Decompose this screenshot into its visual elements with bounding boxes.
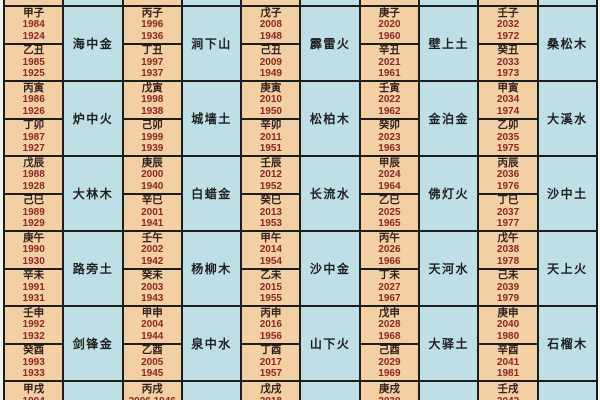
element-cell: 涧下山 <box>183 7 240 80</box>
year-value: 2010 <box>260 94 282 106</box>
year-cell: 庚子20201960 <box>361 7 418 43</box>
years-column: 丙子19961936丁丑19971937戊寅19981938己卯19991939… <box>124 0 181 400</box>
cropped-row-sliver <box>479 0 536 5</box>
year-value: 1930 <box>23 256 45 268</box>
year-value: 2022 <box>378 94 400 106</box>
year-value: 2042 <box>497 396 519 400</box>
stem-branch-label: 丙戌 <box>142 384 163 396</box>
year-value: 2028 <box>378 319 400 331</box>
year-cell: 己未20391979 <box>479 270 536 306</box>
stem-branch-label: 乙巳 <box>379 195 400 207</box>
year-value: 1979 <box>497 293 519 305</box>
year-cell: 甲子19841924 <box>5 7 62 43</box>
element-cell: 长流水 <box>301 157 358 230</box>
element-label: 泉中水 <box>191 335 232 352</box>
year-value: 1961 <box>378 68 400 80</box>
stem-branch-label: 甲子 <box>23 8 44 20</box>
year-cell: 丙辰20361976 <box>479 157 536 193</box>
stem-branch-label: 丁酉 <box>260 345 281 357</box>
stem-branch-label: 乙未 <box>260 270 281 282</box>
year-value: 2015 <box>260 282 282 294</box>
element-label: 山下火 <box>310 335 351 352</box>
element-cell: 山下火 <box>301 307 358 380</box>
year-value: 2004 <box>141 319 163 331</box>
year-value: 1992 <box>23 319 45 331</box>
year-value: 1944 <box>141 331 163 343</box>
year-value: 1977 <box>497 218 519 230</box>
element-label: 松柏木 <box>310 110 351 127</box>
year-value: 2035 <box>497 132 519 144</box>
element-cell: 石榴木 <box>539 307 596 380</box>
cropped-row-sliver <box>301 0 358 5</box>
element-label: 天河水 <box>428 260 469 277</box>
year-value: 1980 <box>497 331 519 343</box>
year-value: 2000 <box>141 169 163 181</box>
stem-branch-label: 己酉 <box>379 345 400 357</box>
year-value: 1957 <box>260 368 282 380</box>
stem-branch-label: 丁卯 <box>23 120 44 132</box>
year-value: 1931 <box>23 293 45 305</box>
year-value: 1963 <box>378 143 400 155</box>
stem-branch-label: 乙丑 <box>23 45 44 57</box>
year-value: 2011 <box>260 132 282 144</box>
element-cell: 金泊金 <box>420 82 477 155</box>
element-cell: 城墙土 <box>183 82 240 155</box>
year-value: 1948 <box>260 31 282 43</box>
year-value: 1960 <box>378 31 400 43</box>
year-value: 1927 <box>23 143 45 155</box>
year-cell: 壬寅20221962 <box>361 82 418 118</box>
year-value: 1984 <box>23 19 45 31</box>
year-value: 2021 <box>378 57 400 69</box>
element-label: 沙中金 <box>310 260 351 277</box>
year-cell: 甲申20041944 <box>124 307 181 343</box>
year-value: 2016 <box>260 319 282 331</box>
stem-branch-label: 丙子 <box>142 8 163 20</box>
element-label: 壁上土 <box>428 35 469 52</box>
cropped-row-sliver <box>242 0 299 5</box>
year-value: 2034 <box>497 94 519 106</box>
stem-branch-label: 己卯 <box>142 120 163 132</box>
year-value: 2003 <box>141 282 163 294</box>
element-label: 金泊金 <box>428 110 469 127</box>
stem-branch-label: 癸丑 <box>498 45 519 57</box>
year-value: 1993 <box>23 357 45 369</box>
element-label: 路旁土 <box>73 260 114 277</box>
year-value: 2014 <box>260 244 282 256</box>
year-value: 1929 <box>23 218 45 230</box>
cropped-row-sliver <box>420 0 477 5</box>
stem-branch-label: 甲申 <box>142 308 163 320</box>
year-value: 1949 <box>260 68 282 80</box>
element-label: 霹雷火 <box>310 35 351 52</box>
stem-branch-label: 丁未 <box>379 270 400 282</box>
year-cell-partial: 庚戌2030 <box>361 382 418 400</box>
element-label: 大林木 <box>73 185 114 202</box>
year-value: 1997 <box>141 57 163 69</box>
element-cell: 壁上土 <box>420 7 477 80</box>
element-cell: 大林木 <box>64 157 121 230</box>
year-cell: 庚午19901930 <box>5 232 62 268</box>
year-value: 1932 <box>23 331 45 343</box>
year-value: 1974 <box>497 106 519 118</box>
element-cell: 大驿土 <box>420 307 477 380</box>
year-cell: 辛卯20111951 <box>242 120 299 156</box>
year-cell-partial: 甲戌1994 <box>5 382 62 400</box>
year-cell: 丁卯19871927 <box>5 120 62 156</box>
year-value: 1936 <box>141 31 163 43</box>
year-cell: 癸丑20331973 <box>479 45 536 81</box>
element-column: 霹雷火松柏木长流水沙中金山下火 <box>301 0 358 400</box>
year-value: 2001 <box>141 207 163 219</box>
stem-branch-label: 庚辰 <box>142 158 163 170</box>
year-value: 1991 <box>23 282 45 294</box>
year-cell: 己巳19891929 <box>5 195 62 231</box>
year-value: 2026 <box>378 244 400 256</box>
year-value: 1955 <box>260 293 282 305</box>
element-label: 炉中火 <box>73 110 114 127</box>
year-value: 2024 <box>378 169 400 181</box>
year-value: 2002 <box>141 244 163 256</box>
year-value: 2008 <box>260 19 282 31</box>
year-value: 1998 <box>141 94 163 106</box>
year-value: 1940 <box>141 181 163 193</box>
year-value: 1994 <box>23 396 45 400</box>
element-cell: 桑松木 <box>539 7 596 80</box>
year-value: 1973 <box>497 68 519 80</box>
year-cell-partial: 戊戌2018 <box>242 382 299 400</box>
stem-branch-label: 庚寅 <box>260 83 281 95</box>
year-value: 1926 <box>23 106 45 118</box>
element-label: 白蜡金 <box>191 185 232 202</box>
year-value: 1952 <box>260 181 282 193</box>
year-cell: 甲午20141954 <box>242 232 299 268</box>
element-cell-partial <box>183 382 240 400</box>
stem-branch-label: 辛未 <box>23 270 44 282</box>
stem-branch-label: 癸卯 <box>379 120 400 132</box>
stem-branch-label: 甲午 <box>260 233 281 245</box>
year-value: 1989 <box>23 207 45 219</box>
element-column: 涧下山城墙土白蜡金杨柳木泉中水 <box>183 0 240 400</box>
year-value: 1988 <box>23 169 45 181</box>
years-column: 戊子20081948己丑20091949庚寅20101950辛卯20111951… <box>242 0 299 400</box>
element-label: 大溪水 <box>547 110 588 127</box>
year-value: 1953 <box>260 218 282 230</box>
year-value: 1954 <box>260 256 282 268</box>
nayin-table: 甲子19841924乙丑19851925丙寅19861926丁卯19871927… <box>3 0 598 400</box>
stem-branch-label: 庚午 <box>23 233 44 245</box>
year-cell: 辛丑20211961 <box>361 45 418 81</box>
year-value: 2017 <box>260 357 282 369</box>
stem-branch-label: 丙辰 <box>498 158 519 170</box>
year-value: 2030 <box>378 396 400 400</box>
stem-branch-label: 壬戌 <box>498 384 519 396</box>
cropped-row-sliver <box>539 0 596 5</box>
year-value: 2018 <box>260 396 282 400</box>
element-cell: 白蜡金 <box>183 157 240 230</box>
element-cell: 杨柳木 <box>183 232 240 305</box>
year-cell: 辛未19911931 <box>5 270 62 306</box>
year-cell: 戊子20081948 <box>242 7 299 43</box>
year-cell: 庚辰20001940 <box>124 157 181 193</box>
year-value: 1975 <box>497 143 519 155</box>
year-cell: 壬午20021942 <box>124 232 181 268</box>
year-cell: 甲寅20341974 <box>479 82 536 118</box>
year-value: 1966 <box>378 256 400 268</box>
stem-branch-label: 甲辰 <box>379 158 400 170</box>
year-value: 1976 <box>497 181 519 193</box>
year-value: 2005 <box>141 357 163 369</box>
stem-branch-label: 己巳 <box>23 195 44 207</box>
year-cell: 辛巳20011941 <box>124 195 181 231</box>
year-value: 1924 <box>23 31 45 43</box>
year-value: 1950 <box>260 106 282 118</box>
cropped-row-sliver <box>124 0 181 5</box>
year-value: 1941 <box>141 218 163 230</box>
stem-branch-label: 戊戌 <box>260 384 281 396</box>
year-cell: 丁酉20171957 <box>242 345 299 381</box>
element-label: 长流水 <box>310 185 351 202</box>
year-cell: 甲辰20241964 <box>361 157 418 193</box>
element-cell-partial <box>301 382 358 400</box>
year-value: 1985 <box>23 57 45 69</box>
element-cell: 路旁土 <box>64 232 121 305</box>
year-cell: 丙子19961936 <box>124 7 181 43</box>
year-value: 2009 <box>260 57 282 69</box>
year-value: 1925 <box>23 68 45 80</box>
year-value: 1972 <box>497 31 519 43</box>
year-value: 1981 <box>497 368 519 380</box>
year-cell: 己丑20091949 <box>242 45 299 81</box>
year-value: 2023 <box>378 132 400 144</box>
year-value: 1967 <box>378 293 400 305</box>
stem-branch-label: 乙酉 <box>142 345 163 357</box>
element-cell: 松柏木 <box>301 82 358 155</box>
element-column: 海中金炉中火大林木路旁土剑锋金 <box>64 0 121 400</box>
stem-branch-label: 戊子 <box>260 8 281 20</box>
year-value: 2020 <box>378 19 400 31</box>
stem-branch-label: 丙寅 <box>23 83 44 95</box>
year-value: 2032 <box>497 19 519 31</box>
element-label: 杨柳木 <box>191 260 232 277</box>
year-cell: 戊午20381978 <box>479 232 536 268</box>
stem-branch-label: 壬子 <box>498 8 519 20</box>
year-value: 2012 <box>260 169 282 181</box>
element-cell: 海中金 <box>64 7 121 80</box>
year-value: 2033 <box>497 57 519 69</box>
stem-branch-label: 辛巳 <box>142 195 163 207</box>
year-value: 2006 1946 <box>129 396 176 400</box>
stem-branch-label: 己丑 <box>260 45 281 57</box>
element-cell: 剑锋金 <box>64 307 121 380</box>
year-cell: 癸未20031943 <box>124 270 181 306</box>
year-value: 2037 <box>497 207 519 219</box>
stem-branch-label: 丁丑 <box>142 45 163 57</box>
year-cell: 癸酉19931933 <box>5 345 62 381</box>
stem-branch-label: 乙卯 <box>498 120 519 132</box>
stem-branch-label: 丁巳 <box>498 195 519 207</box>
year-value: 1939 <box>141 143 163 155</box>
element-cell: 佛灯火 <box>420 157 477 230</box>
year-value: 1928 <box>23 181 45 193</box>
year-cell: 丁丑19971937 <box>124 45 181 81</box>
year-value: 2025 <box>378 207 400 219</box>
year-cell: 乙丑19851925 <box>5 45 62 81</box>
year-value: 1965 <box>378 218 400 230</box>
year-cell: 丁未20271967 <box>361 270 418 306</box>
year-cell: 丙寅19861926 <box>5 82 62 118</box>
element-label: 佛灯火 <box>428 185 469 202</box>
stem-branch-label: 庚子 <box>379 8 400 20</box>
stem-branch-label: 戊申 <box>379 308 400 320</box>
element-label: 桑松木 <box>547 35 588 52</box>
year-value: 1942 <box>141 256 163 268</box>
years-column: 庚子20201960辛丑20211961壬寅20221962癸卯20231963… <box>361 0 418 400</box>
element-cell: 泉中水 <box>183 307 240 380</box>
stem-branch-label: 癸巳 <box>260 195 281 207</box>
element-column: 壁上土金泊金佛灯火天河水大驿土 <box>420 0 477 400</box>
stem-branch-label: 壬午 <box>142 233 163 245</box>
element-label: 剑锋金 <box>73 335 114 352</box>
year-cell: 庚寅20101950 <box>242 82 299 118</box>
year-value: 2041 <box>497 357 519 369</box>
year-cell-partial: 壬戌2042 <box>479 382 536 400</box>
element-cell: 天河水 <box>420 232 477 305</box>
year-cell: 壬子20321972 <box>479 7 536 43</box>
stem-branch-label: 戊辰 <box>23 158 44 170</box>
year-value: 2039 <box>497 282 519 294</box>
year-cell: 戊申20281968 <box>361 307 418 343</box>
cropped-row-sliver <box>361 0 418 5</box>
element-cell: 沙中金 <box>301 232 358 305</box>
year-cell: 癸卯20231963 <box>361 120 418 156</box>
year-cell: 壬辰20121952 <box>242 157 299 193</box>
year-cell: 乙酉20051945 <box>124 345 181 381</box>
year-cell: 戊寅19981938 <box>124 82 181 118</box>
stem-branch-label: 壬辰 <box>260 158 281 170</box>
year-value: 1968 <box>378 331 400 343</box>
stem-branch-label: 辛卯 <box>260 120 281 132</box>
element-column: 桑松木大溪水沙中土天上火石榴木 <box>539 0 596 400</box>
stem-branch-label: 辛丑 <box>379 45 400 57</box>
stem-branch-label: 甲寅 <box>498 83 519 95</box>
stem-branch-label: 戊午 <box>498 233 519 245</box>
element-cell-partial <box>64 382 121 400</box>
year-cell: 癸巳20131953 <box>242 195 299 231</box>
year-cell: 乙未20151955 <box>242 270 299 306</box>
year-cell: 乙卯20351975 <box>479 120 536 156</box>
stem-branch-label: 壬申 <box>23 308 44 320</box>
year-cell: 戊辰19881928 <box>5 157 62 193</box>
element-label: 涧下山 <box>191 35 232 52</box>
element-label: 石榴木 <box>547 335 588 352</box>
years-column: 壬子20321972癸丑20331973甲寅20341974乙卯20351975… <box>479 0 536 400</box>
year-cell: 己卯19991939 <box>124 120 181 156</box>
element-label: 沙中土 <box>547 185 588 202</box>
year-value: 1969 <box>378 368 400 380</box>
element-cell: 霹雷火 <box>301 7 358 80</box>
year-cell: 壬申19921932 <box>5 307 62 343</box>
year-value: 1938 <box>141 106 163 118</box>
stem-branch-label: 丙申 <box>260 308 281 320</box>
stem-branch-label: 己未 <box>498 270 519 282</box>
year-value: 2038 <box>497 244 519 256</box>
year-value: 2036 <box>497 169 519 181</box>
year-value: 1933 <box>23 368 45 380</box>
element-cell: 沙中土 <box>539 157 596 230</box>
years-column: 甲子19841924乙丑19851925丙寅19861926丁卯19871927… <box>5 0 62 400</box>
year-value: 1962 <box>378 106 400 118</box>
year-value: 1978 <box>497 256 519 268</box>
element-cell-partial <box>420 382 477 400</box>
element-cell: 大溪水 <box>539 82 596 155</box>
cropped-row-sliver <box>5 0 62 5</box>
stem-branch-label: 辛酉 <box>498 345 519 357</box>
stem-branch-label: 庚戌 <box>379 384 400 396</box>
year-cell: 己酉20291969 <box>361 345 418 381</box>
stem-branch-label: 癸酉 <box>23 345 44 357</box>
year-value: 1996 <box>141 19 163 31</box>
year-value: 1986 <box>23 94 45 106</box>
element-label: 大驿土 <box>428 335 469 352</box>
cropped-row-sliver <box>183 0 240 5</box>
stem-branch-label: 戊寅 <box>142 83 163 95</box>
element-cell: 天上火 <box>539 232 596 305</box>
year-cell: 丙午20261966 <box>361 232 418 268</box>
year-value: 1990 <box>23 244 45 256</box>
year-value: 1999 <box>141 132 163 144</box>
year-value: 1943 <box>141 293 163 305</box>
year-cell: 丁巳20371977 <box>479 195 536 231</box>
stem-branch-label: 甲戌 <box>23 384 44 396</box>
year-cell: 丙申20161956 <box>242 307 299 343</box>
year-value: 1945 <box>141 368 163 380</box>
year-cell: 乙巳20251965 <box>361 195 418 231</box>
year-value: 1937 <box>141 68 163 80</box>
stem-branch-label: 丙午 <box>379 233 400 245</box>
element-label: 城墙土 <box>191 110 232 127</box>
year-value: 1951 <box>260 143 282 155</box>
year-value: 2013 <box>260 207 282 219</box>
year-value: 1964 <box>378 181 400 193</box>
year-value: 2027 <box>378 282 400 294</box>
year-value: 1987 <box>23 132 45 144</box>
stem-branch-label: 庚申 <box>498 308 519 320</box>
year-value: 2040 <box>497 319 519 331</box>
element-label: 天上火 <box>547 260 588 277</box>
element-cell-partial <box>539 382 596 400</box>
element-label: 海中金 <box>73 35 114 52</box>
year-value: 1956 <box>260 331 282 343</box>
year-value: 2029 <box>378 357 400 369</box>
element-cell: 炉中火 <box>64 82 121 155</box>
stem-branch-label: 壬寅 <box>379 83 400 95</box>
year-cell: 庚申20401980 <box>479 307 536 343</box>
stem-branch-label: 癸未 <box>142 270 163 282</box>
year-cell-partial: 丙戌2006 1946 <box>124 382 181 400</box>
year-cell: 辛酉20411981 <box>479 345 536 381</box>
cropped-row-sliver <box>64 0 121 5</box>
